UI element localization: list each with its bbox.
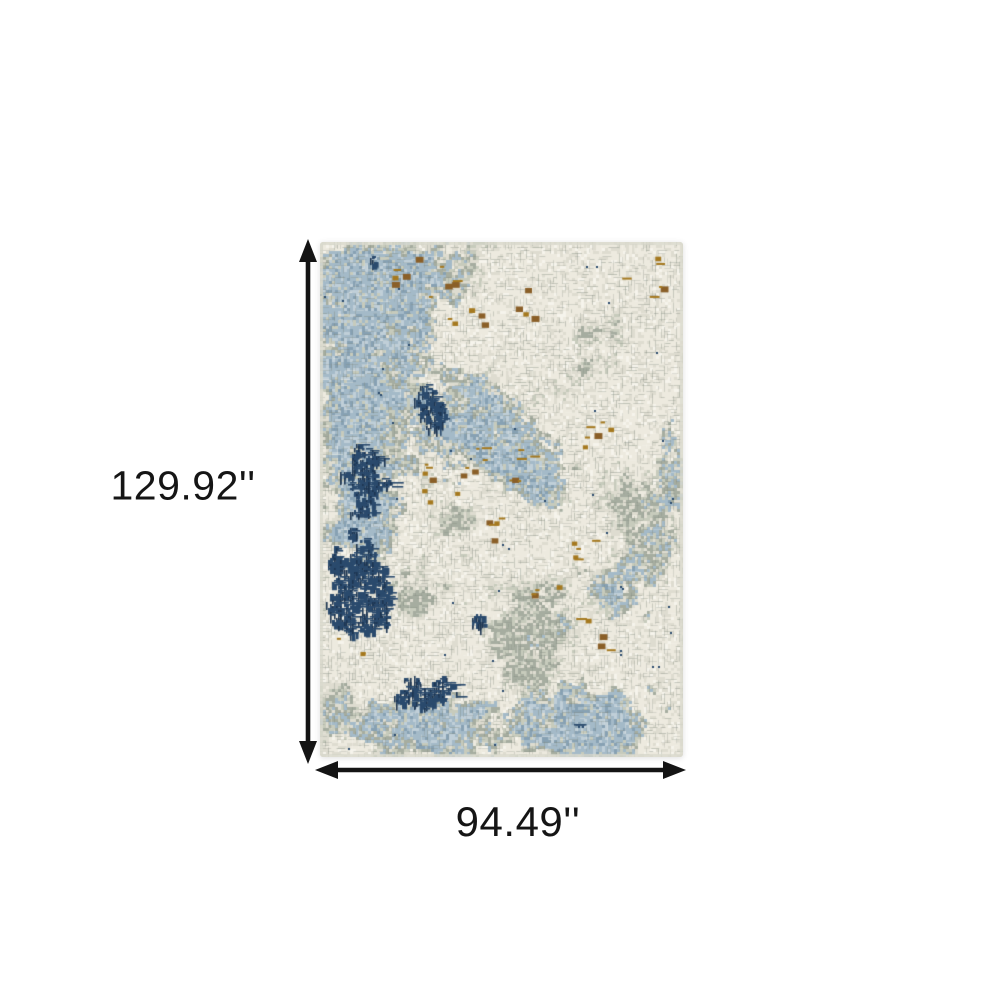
arrow-left-icon [315,761,338,779]
width-dimension-arrow [315,761,686,779]
height-dimension-label: 129.92'' [110,463,255,510]
rug-pattern-canvas [320,242,683,757]
arrow-right-icon [663,761,686,779]
width-dimension-label: 94.49'' [456,798,581,846]
product-dimension-figure: 129.92'' 94.49'' [0,0,1000,1000]
height-dimension-arrow [299,239,317,764]
arrow-up-icon [299,239,317,262]
rug-product-image [320,242,683,757]
arrow-down-icon [299,741,317,764]
